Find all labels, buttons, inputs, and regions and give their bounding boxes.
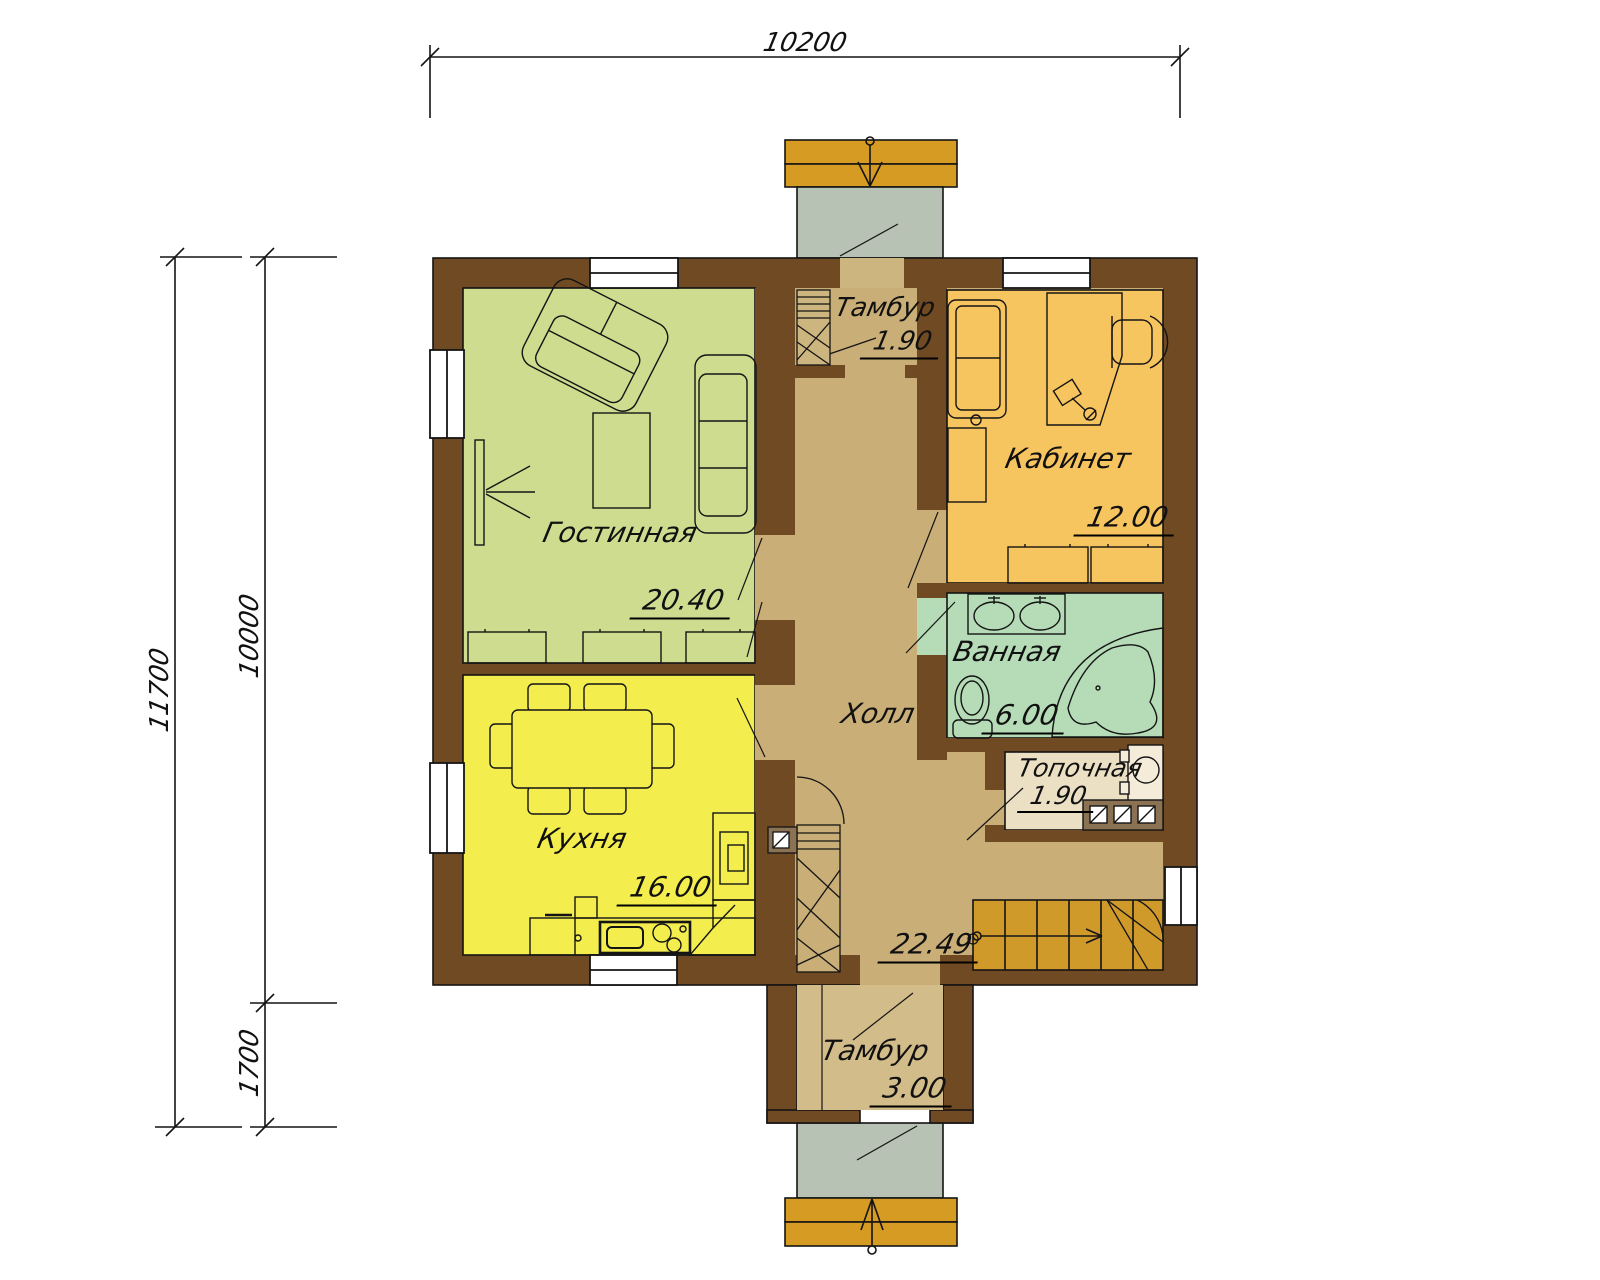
dim-left-main-label: 10000 — [237, 592, 263, 680]
vestibule-top-area: 1.90 — [860, 329, 944, 360]
vestibule-top-label: Тамбур — [833, 295, 938, 321]
staircase — [973, 900, 1163, 970]
window-stairs-right — [1165, 867, 1197, 925]
floor-plan-page: 10200 11700 10000 1700 Гостинная 20.40 К… — [0, 0, 1600, 1280]
vestibule-bottom-label: Тамбур — [819, 1037, 932, 1065]
bathroom-area: 6.00 — [981, 702, 1070, 735]
equipment-strip — [1083, 800, 1163, 830]
porch-top — [785, 137, 957, 258]
dim-left-total-label: 11700 — [147, 646, 173, 734]
hall-area: 22.49 — [877, 931, 984, 964]
living-room-label: Гостинная — [540, 519, 699, 547]
dim-top-label: 10200 — [761, 30, 849, 56]
office-label: Кабинет — [1003, 445, 1133, 473]
kitchen-label: Кухня — [535, 825, 629, 853]
window-kitchen-left — [430, 763, 464, 853]
boiler-room-area: 1.90 — [1017, 783, 1099, 813]
living-room-area: 20.40 — [629, 587, 736, 620]
closet-vestibule — [797, 290, 830, 365]
vestibule-bottom-area: 3.00 — [869, 1075, 958, 1108]
window-living-left — [430, 350, 464, 438]
office-floor — [947, 290, 1163, 583]
porch-bottom — [785, 1123, 957, 1254]
office-area: 12.00 — [1073, 504, 1180, 537]
hall-label: Холл — [839, 700, 917, 728]
front-door-opening — [840, 258, 904, 288]
window-kitchen-bottom — [590, 955, 677, 985]
bathroom-label: Ванная — [951, 638, 1064, 666]
boiler-room-label: Топочная — [1015, 756, 1144, 781]
vent-shaft — [768, 827, 797, 853]
window-living-top — [590, 258, 678, 288]
office-door-opening — [917, 510, 947, 583]
window-office-top — [1003, 258, 1090, 288]
kitchen-area: 16.00 — [616, 874, 723, 907]
dim-left-lower-label: 1700 — [237, 1027, 263, 1099]
